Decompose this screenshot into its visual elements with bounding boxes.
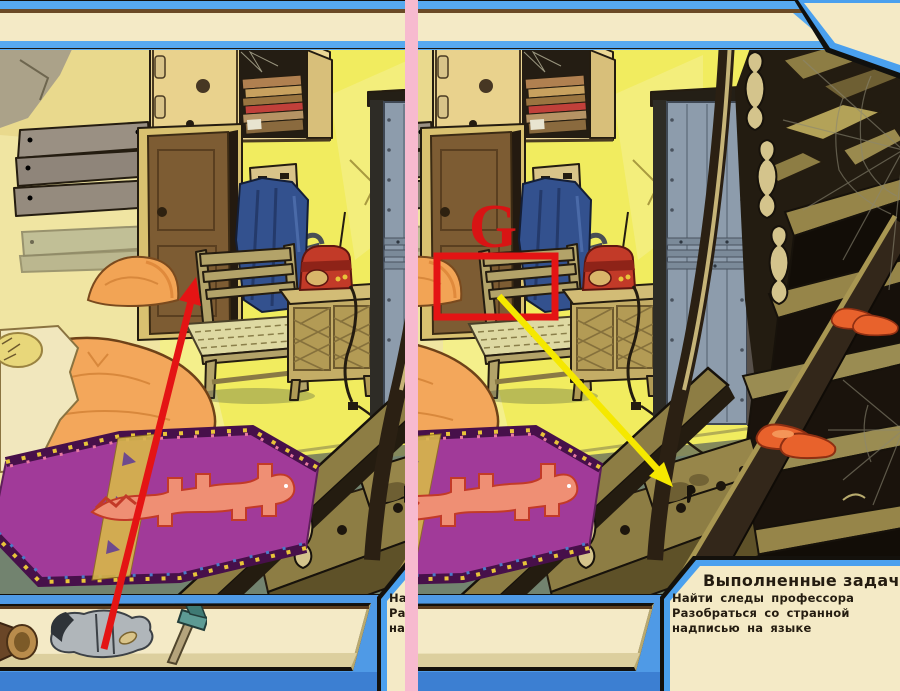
books-stack	[240, 75, 305, 134]
task-panel-title: Выполненные задачи 0/2	[703, 571, 885, 590]
horn-item-icon[interactable]	[0, 620, 37, 664]
task-item: Разобраться со странной надписью на язык…	[389, 606, 405, 636]
left-screenshot: Выполненные задачи 0/2 Найти следы профе…	[0, 0, 405, 691]
comparison-screenshot: Выполненные задачи 0/2 Найти следы профе…	[0, 0, 900, 691]
inventory-items	[0, 606, 207, 670]
right-screenshot: Выполненные задачи 0/2 Найти следы профе…	[418, 0, 900, 691]
top-frame-edge	[0, 48, 405, 49]
top-frame-band	[0, 13, 405, 41]
purple-rug[interactable]	[0, 430, 318, 582]
hammer-icon[interactable]	[168, 606, 207, 664]
boarded-window[interactable]	[14, 122, 154, 272]
room-scene[interactable]	[0, 0, 405, 691]
top-frame-line	[0, 9, 405, 13]
game-window: Выполненные задачи 0/2 Найти следы профе…	[0, 0, 405, 691]
inventory-bar	[418, 602, 663, 674]
task-item: Найти следы профессора	[389, 591, 405, 606]
task-item: Разобраться со странной надписью на язык…	[672, 606, 896, 636]
task-item: Найти следы профессора	[672, 591, 896, 606]
bottom-frame-strip	[0, 672, 405, 691]
door[interactable]	[418, 124, 525, 340]
task-list: Найти следы профессора Разобраться со ст…	[389, 591, 405, 637]
boots-icon[interactable]	[51, 611, 152, 658]
task-list: Найти следы профессора Разобраться со ст…	[672, 591, 896, 637]
books-stack	[523, 75, 588, 134]
corner-menu-tab[interactable]	[788, 0, 900, 84]
game-window: Выполненные задачи 0/2 Найти следы профе…	[418, 0, 900, 691]
divider-line	[405, 0, 418, 691]
